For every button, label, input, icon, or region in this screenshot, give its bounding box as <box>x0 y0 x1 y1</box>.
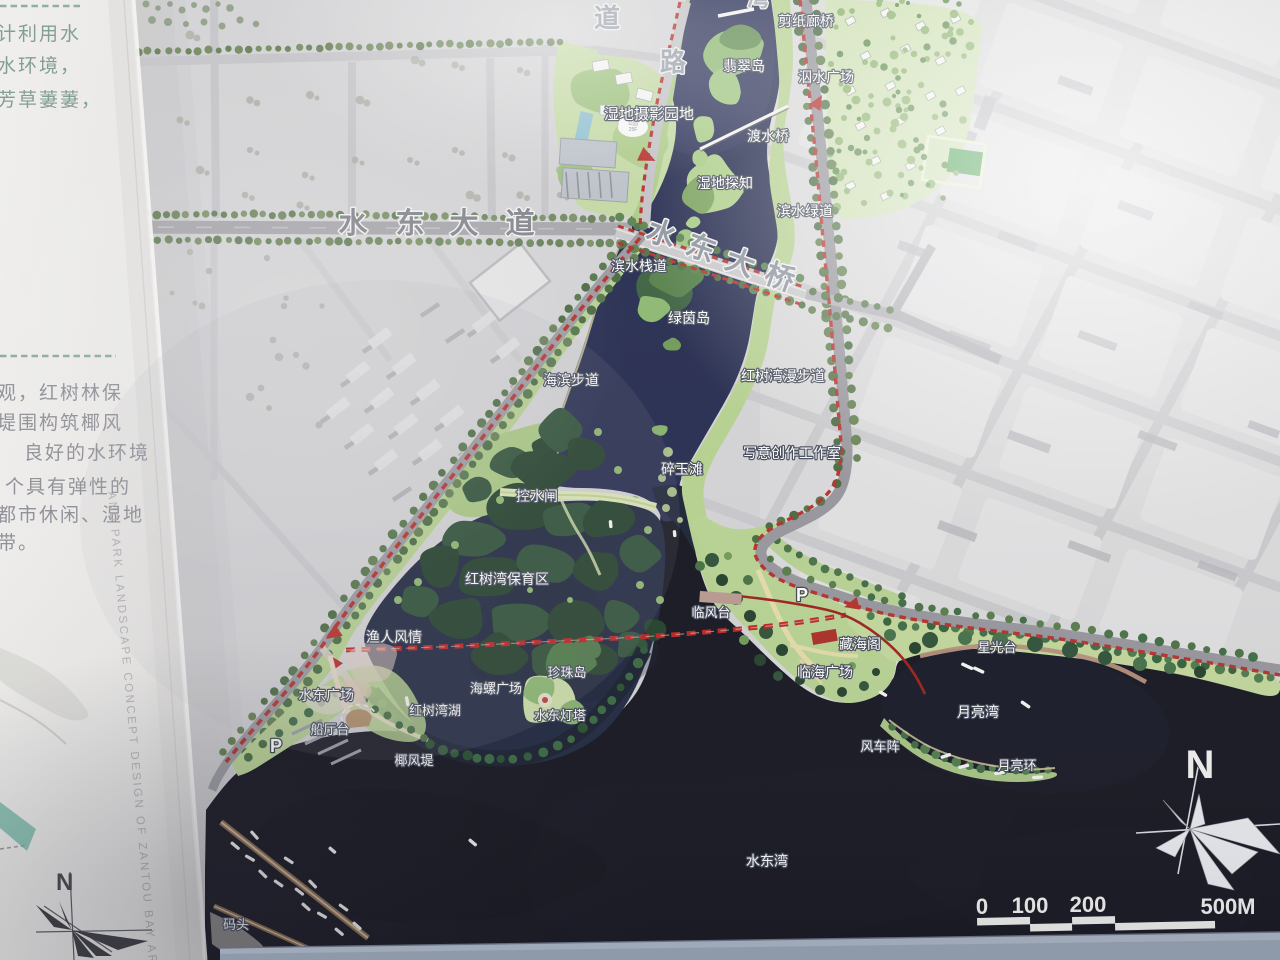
svg-text:25F: 25F <box>629 127 638 133</box>
svg-text:带。: 带。 <box>0 532 39 554</box>
svg-text:临海广场: 临海广场 <box>797 664 853 680</box>
svg-text:船厅台: 船厅台 <box>310 722 349 737</box>
svg-text:泅水广场: 泅水广场 <box>798 69 854 85</box>
svg-text:500M: 500M <box>1200 894 1255 919</box>
svg-text:观，红树林保: 观，红树林保 <box>0 382 123 404</box>
svg-text:良好的水环境: 良好的水环境 <box>24 442 150 464</box>
svg-text:水东灯塔: 水东灯塔 <box>534 708 586 723</box>
svg-text:翡翠岛: 翡翠岛 <box>723 58 765 74</box>
svg-text:P: P <box>270 736 282 756</box>
svg-text:滨水绿道: 滨水绿道 <box>777 203 833 219</box>
svg-text:堤围构筑椰风: 堤围构筑椰风 <box>0 412 123 434</box>
svg-text:大: 大 <box>449 207 478 240</box>
svg-text:芳草萋萋，: 芳草萋萋， <box>0 89 102 111</box>
svg-text:道: 道 <box>505 207 534 240</box>
svg-text:渔人风情: 渔人风情 <box>366 629 422 645</box>
svg-text:藏海阁: 藏海阁 <box>839 636 881 652</box>
svg-text:海滨步道: 海滨步道 <box>543 372 599 388</box>
svg-text:月亮环: 月亮环 <box>997 758 1036 773</box>
svg-text:星光台: 星光台 <box>977 640 1016 655</box>
svg-text:100: 100 <box>1012 893 1049 918</box>
svg-text:月亮湾: 月亮湾 <box>957 704 999 720</box>
svg-text:椰风堤: 椰风堤 <box>394 753 433 768</box>
svg-text:写意创作工作室: 写意创作工作室 <box>743 445 841 461</box>
svg-text:N: N <box>56 869 73 896</box>
svg-text:水: 水 <box>338 207 368 240</box>
svg-text:东: 东 <box>395 206 424 240</box>
svg-text:路: 路 <box>660 47 687 77</box>
svg-text:临风台: 临风台 <box>691 605 730 620</box>
svg-text:海螺广场: 海螺广场 <box>470 681 522 696</box>
svg-text:水东湾: 水东湾 <box>746 853 788 869</box>
svg-text:湿地摄影园地: 湿地摄影园地 <box>604 106 694 123</box>
svg-text:码头: 码头 <box>223 917 249 932</box>
svg-text:珍珠岛: 珍珠岛 <box>547 665 586 680</box>
svg-text:渡水桥: 渡水桥 <box>747 128 789 144</box>
svg-text:0: 0 <box>976 894 988 919</box>
svg-text:剪纸廊桥: 剪纸廊桥 <box>778 13 834 29</box>
svg-text:道: 道 <box>594 3 620 33</box>
svg-text:计利用水: 计利用水 <box>0 23 81 45</box>
svg-text:红树湾保育区: 红树湾保育区 <box>465 571 549 587</box>
svg-text:风车阵: 风车阵 <box>860 739 899 754</box>
svg-text:湾: 湾 <box>747 0 769 11</box>
svg-text:水环境，: 水环境， <box>0 55 81 77</box>
svg-text:都市休闲、湿地: 都市休闲、湿地 <box>0 504 144 526</box>
svg-text:红树湾湖: 红树湾湖 <box>409 703 461 718</box>
svg-text:N: N <box>1186 743 1215 787</box>
svg-text:控水闸: 控水闸 <box>516 488 558 504</box>
svg-text:水东广场: 水东广场 <box>298 687 354 703</box>
svg-text:碎玉滩: 碎玉滩 <box>661 461 703 477</box>
svg-text:绿茵岛: 绿茵岛 <box>668 310 710 326</box>
svg-text:湿地探知: 湿地探知 <box>697 175 753 191</box>
svg-text:200: 200 <box>1070 892 1107 917</box>
svg-text:红树湾漫步道: 红树湾漫步道 <box>741 368 825 384</box>
svg-text:P: P <box>796 585 808 605</box>
svg-text:滨水栈道: 滨水栈道 <box>611 258 667 274</box>
